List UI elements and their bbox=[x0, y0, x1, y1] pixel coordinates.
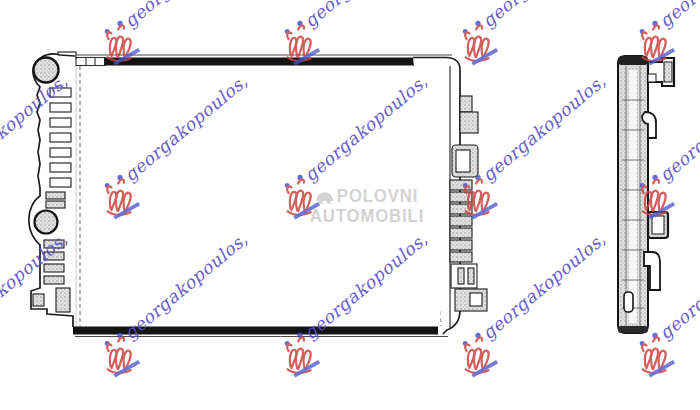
front-view-bottom-header bbox=[73, 327, 438, 335]
front-view-filler-port bbox=[35, 211, 58, 234]
front-view-top-right-bracket bbox=[460, 96, 472, 112]
radiator-technical-drawing bbox=[0, 0, 700, 410]
front-view-top-header bbox=[58, 52, 448, 66]
radiator-product-image: POLOVNI AUTOMOBILI georgakopoulos, bbox=[0, 0, 700, 410]
front-view-left-tank bbox=[29, 54, 75, 327]
front-view-core bbox=[75, 55, 452, 337]
radiator-side-view bbox=[618, 56, 674, 333]
front-view-top-inlet-port bbox=[34, 58, 59, 83]
front-view-left-bracket bbox=[33, 294, 44, 306]
front-view-right-tank bbox=[413, 58, 487, 335]
side-view-drain-slot bbox=[624, 292, 633, 312]
radiator-front-view bbox=[29, 52, 487, 337]
